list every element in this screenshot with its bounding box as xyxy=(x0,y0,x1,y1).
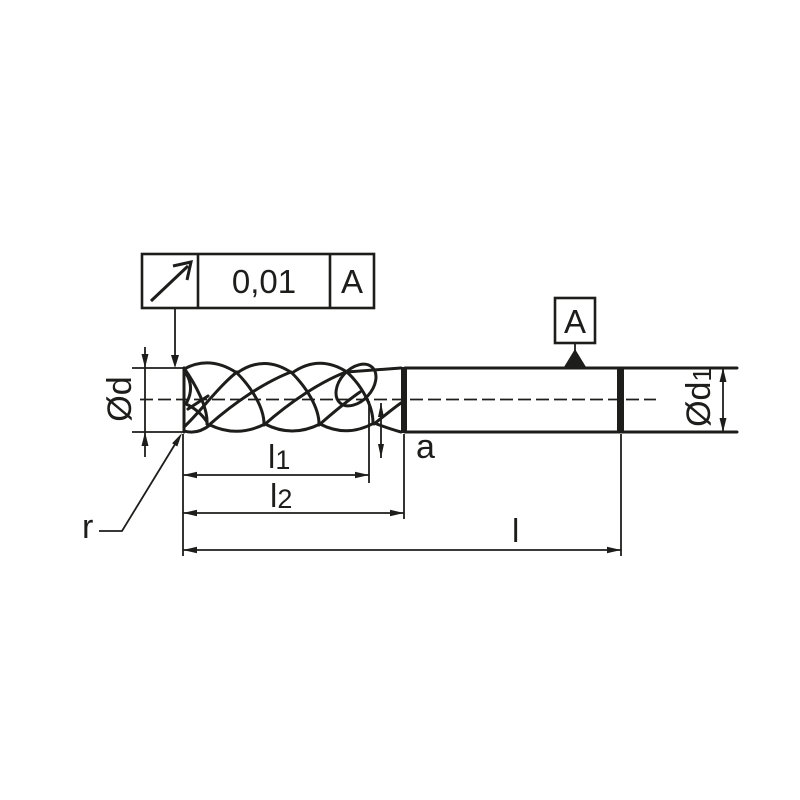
l2-label-base: l xyxy=(270,477,277,514)
dimension-a xyxy=(378,403,384,458)
r-leader-arrowhead xyxy=(172,433,182,447)
l-arrowhead-right xyxy=(607,547,621,553)
a-label: a xyxy=(416,428,435,466)
l1-arrowhead-left xyxy=(183,472,197,478)
r-label: r xyxy=(82,508,93,546)
l1-arrowhead-right xyxy=(355,472,369,478)
flute-strand-shallow-1 xyxy=(209,372,291,425)
l2-label: l2 xyxy=(270,477,292,514)
l1-label-base: l xyxy=(268,438,275,475)
d-label: Ød xyxy=(101,376,139,421)
l-label: l xyxy=(512,512,519,549)
frame-leader-arrowhead xyxy=(171,355,179,368)
flute-strand-shallow-3 xyxy=(319,392,360,425)
l1-label: l1 xyxy=(268,438,290,475)
l1-label-sub: 1 xyxy=(275,445,290,475)
d1-arrowhead-top xyxy=(720,368,727,382)
d-arrowhead-bottom xyxy=(142,432,149,446)
drawing-svg: 0,01 A A xyxy=(0,0,800,800)
runout-arrow-shaft xyxy=(151,266,188,301)
a-arrowhead-bottom xyxy=(378,444,384,458)
tolerance-datum-ref: A xyxy=(341,263,363,300)
datum-label: A xyxy=(564,303,586,340)
d1-arrowhead-bottom xyxy=(720,418,727,432)
flute-strand-shallow-4 xyxy=(374,403,401,424)
l-arrowhead-left xyxy=(183,547,197,553)
tolerance-value: 0,01 xyxy=(232,263,296,300)
d1-label-sub: 1 xyxy=(687,367,717,381)
radius-callout xyxy=(99,433,182,531)
l2-arrowhead-right xyxy=(390,510,404,516)
a-arrowhead-top xyxy=(378,403,384,417)
l2-label-sub: 2 xyxy=(277,484,292,514)
d1-label-base: Ød xyxy=(680,382,718,427)
dimension-d1 xyxy=(720,368,727,432)
circular-runout-arrow-icon xyxy=(151,262,191,301)
d-arrowhead-top xyxy=(142,354,149,368)
datum-triangle-icon xyxy=(564,349,586,367)
d1-label: Ød1 xyxy=(680,367,718,427)
technical-drawing-end-mill: 0,01 A A xyxy=(0,0,800,800)
l2-arrowhead-left xyxy=(183,510,197,516)
r-leader-line xyxy=(99,441,177,531)
